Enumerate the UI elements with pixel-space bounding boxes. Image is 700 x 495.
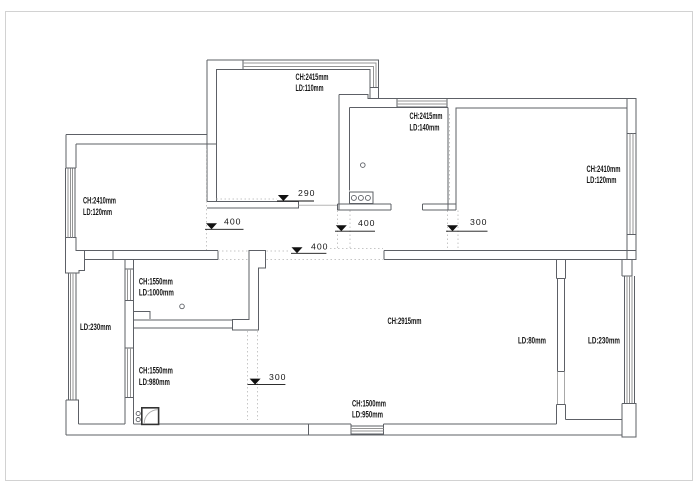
svg-text:LD:140mm: LD:140mm bbox=[410, 123, 440, 133]
svg-text:CH:1550mm: CH:1550mm bbox=[139, 366, 173, 376]
svg-text:300: 300 bbox=[269, 372, 286, 382]
svg-text:CH:2415mm: CH:2415mm bbox=[410, 111, 443, 121]
svg-text:CH:1500mm: CH:1500mm bbox=[352, 399, 386, 409]
svg-text:CH:2410mm: CH:2410mm bbox=[83, 196, 116, 206]
svg-text:LD:110mm: LD:110mm bbox=[296, 83, 324, 93]
svg-text:400: 400 bbox=[224, 217, 241, 227]
svg-text:300: 300 bbox=[470, 217, 487, 227]
svg-text:CH:2410mm: CH:2410mm bbox=[587, 164, 621, 174]
svg-text:LD:1000mm: LD:1000mm bbox=[139, 288, 174, 298]
svg-text:LD:980mm: LD:980mm bbox=[139, 377, 170, 387]
svg-text:LD:950mm: LD:950mm bbox=[352, 410, 383, 420]
svg-text:290: 290 bbox=[298, 188, 315, 198]
svg-text:LD:230mm: LD:230mm bbox=[588, 336, 620, 346]
svg-text:CH:1550mm: CH:1550mm bbox=[139, 277, 173, 287]
svg-text:CH:2415mm: CH:2415mm bbox=[296, 72, 329, 82]
svg-text:LD:120mm: LD:120mm bbox=[83, 207, 112, 217]
svg-text:LD:120mm: LD:120mm bbox=[587, 175, 617, 185]
svg-text:400: 400 bbox=[358, 218, 375, 228]
svg-text:LD:80mm: LD:80mm bbox=[518, 336, 546, 346]
svg-text:400: 400 bbox=[311, 242, 328, 252]
svg-text:CH:2915mm: CH:2915mm bbox=[388, 316, 422, 326]
svg-text:LD:230mm: LD:230mm bbox=[80, 322, 111, 332]
